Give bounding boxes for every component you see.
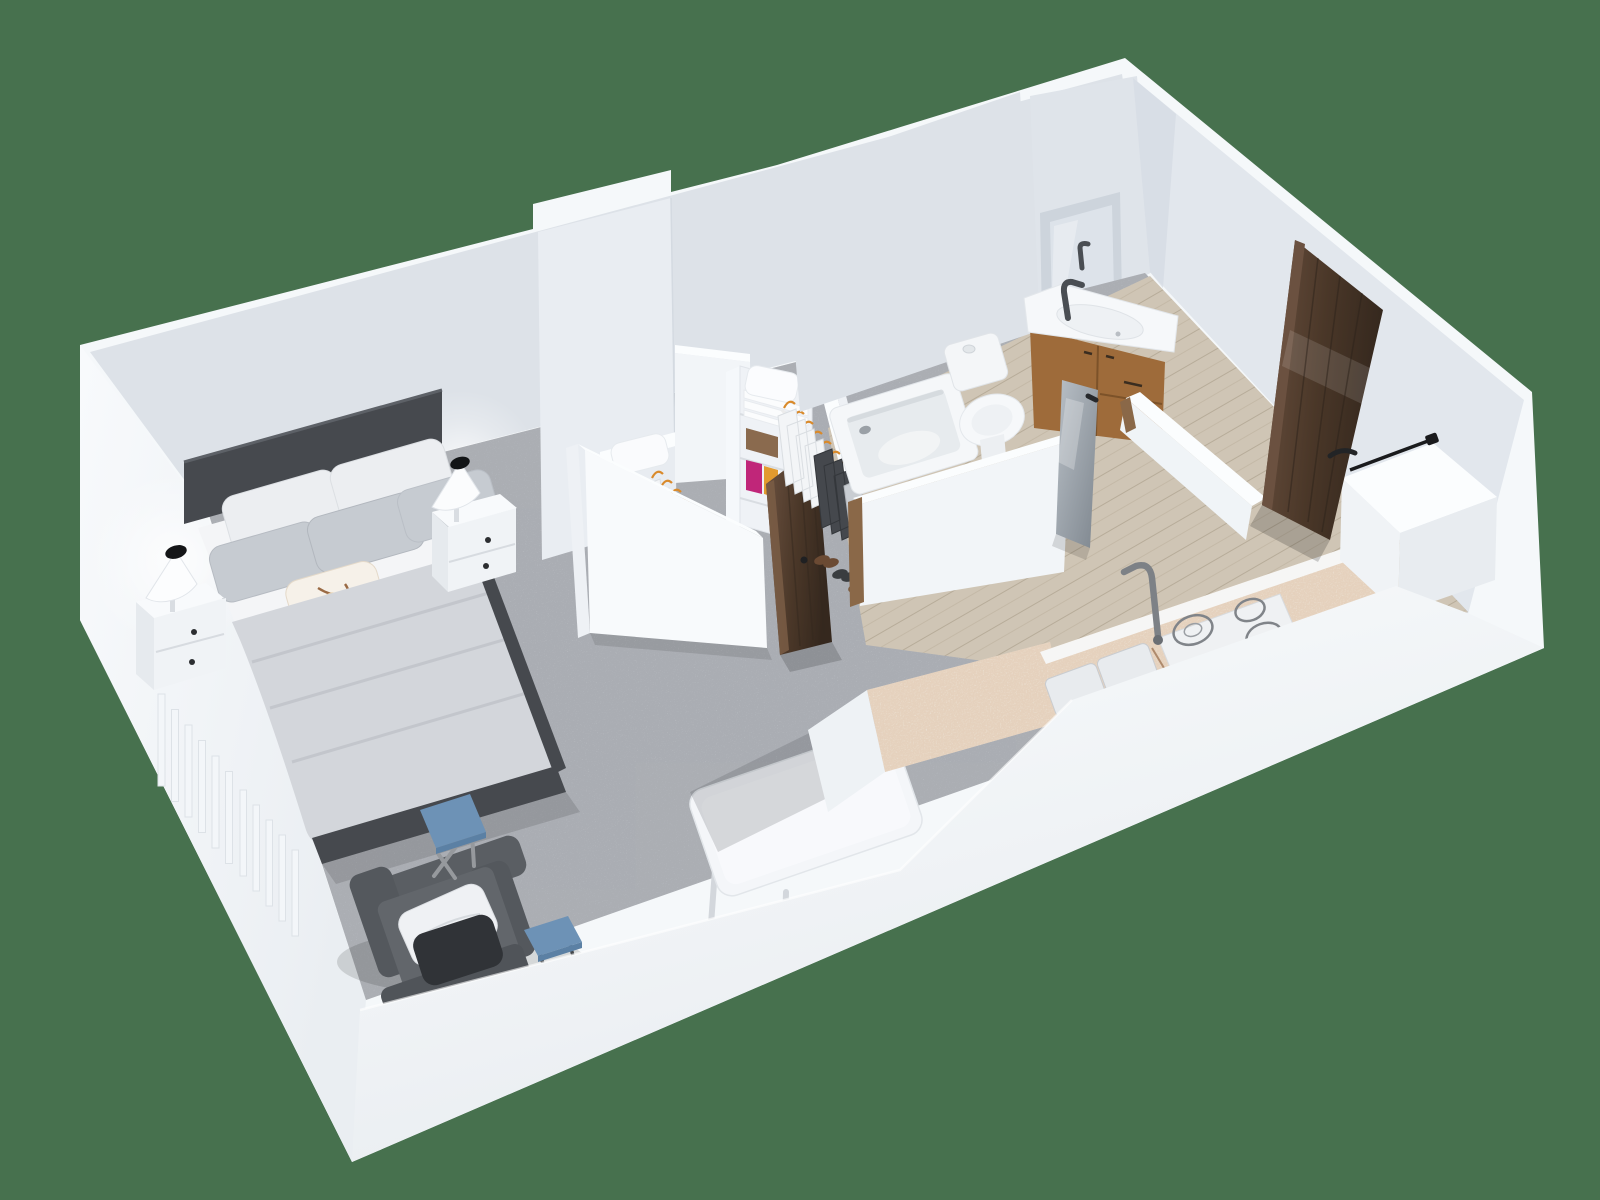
shelving-magenta-item	[746, 460, 762, 494]
nightstand-right-knob-top	[485, 537, 491, 543]
floorplan-svg	[0, 0, 1600, 1200]
toilet-flush-button	[963, 345, 975, 353]
lamp-right-stem	[454, 508, 459, 522]
nightstand-left-knob-top	[191, 629, 197, 635]
shelving-side	[726, 366, 740, 532]
closet-door-handle	[801, 557, 808, 564]
nightstand-left-knob-bottom	[189, 659, 195, 665]
render-stage	[0, 0, 1600, 1200]
nightstand-right-knob-bottom	[483, 563, 489, 569]
partition-south-wood-cap	[848, 497, 864, 607]
sink-faucet-base	[1153, 635, 1163, 645]
vanity-overflow	[1116, 332, 1121, 337]
